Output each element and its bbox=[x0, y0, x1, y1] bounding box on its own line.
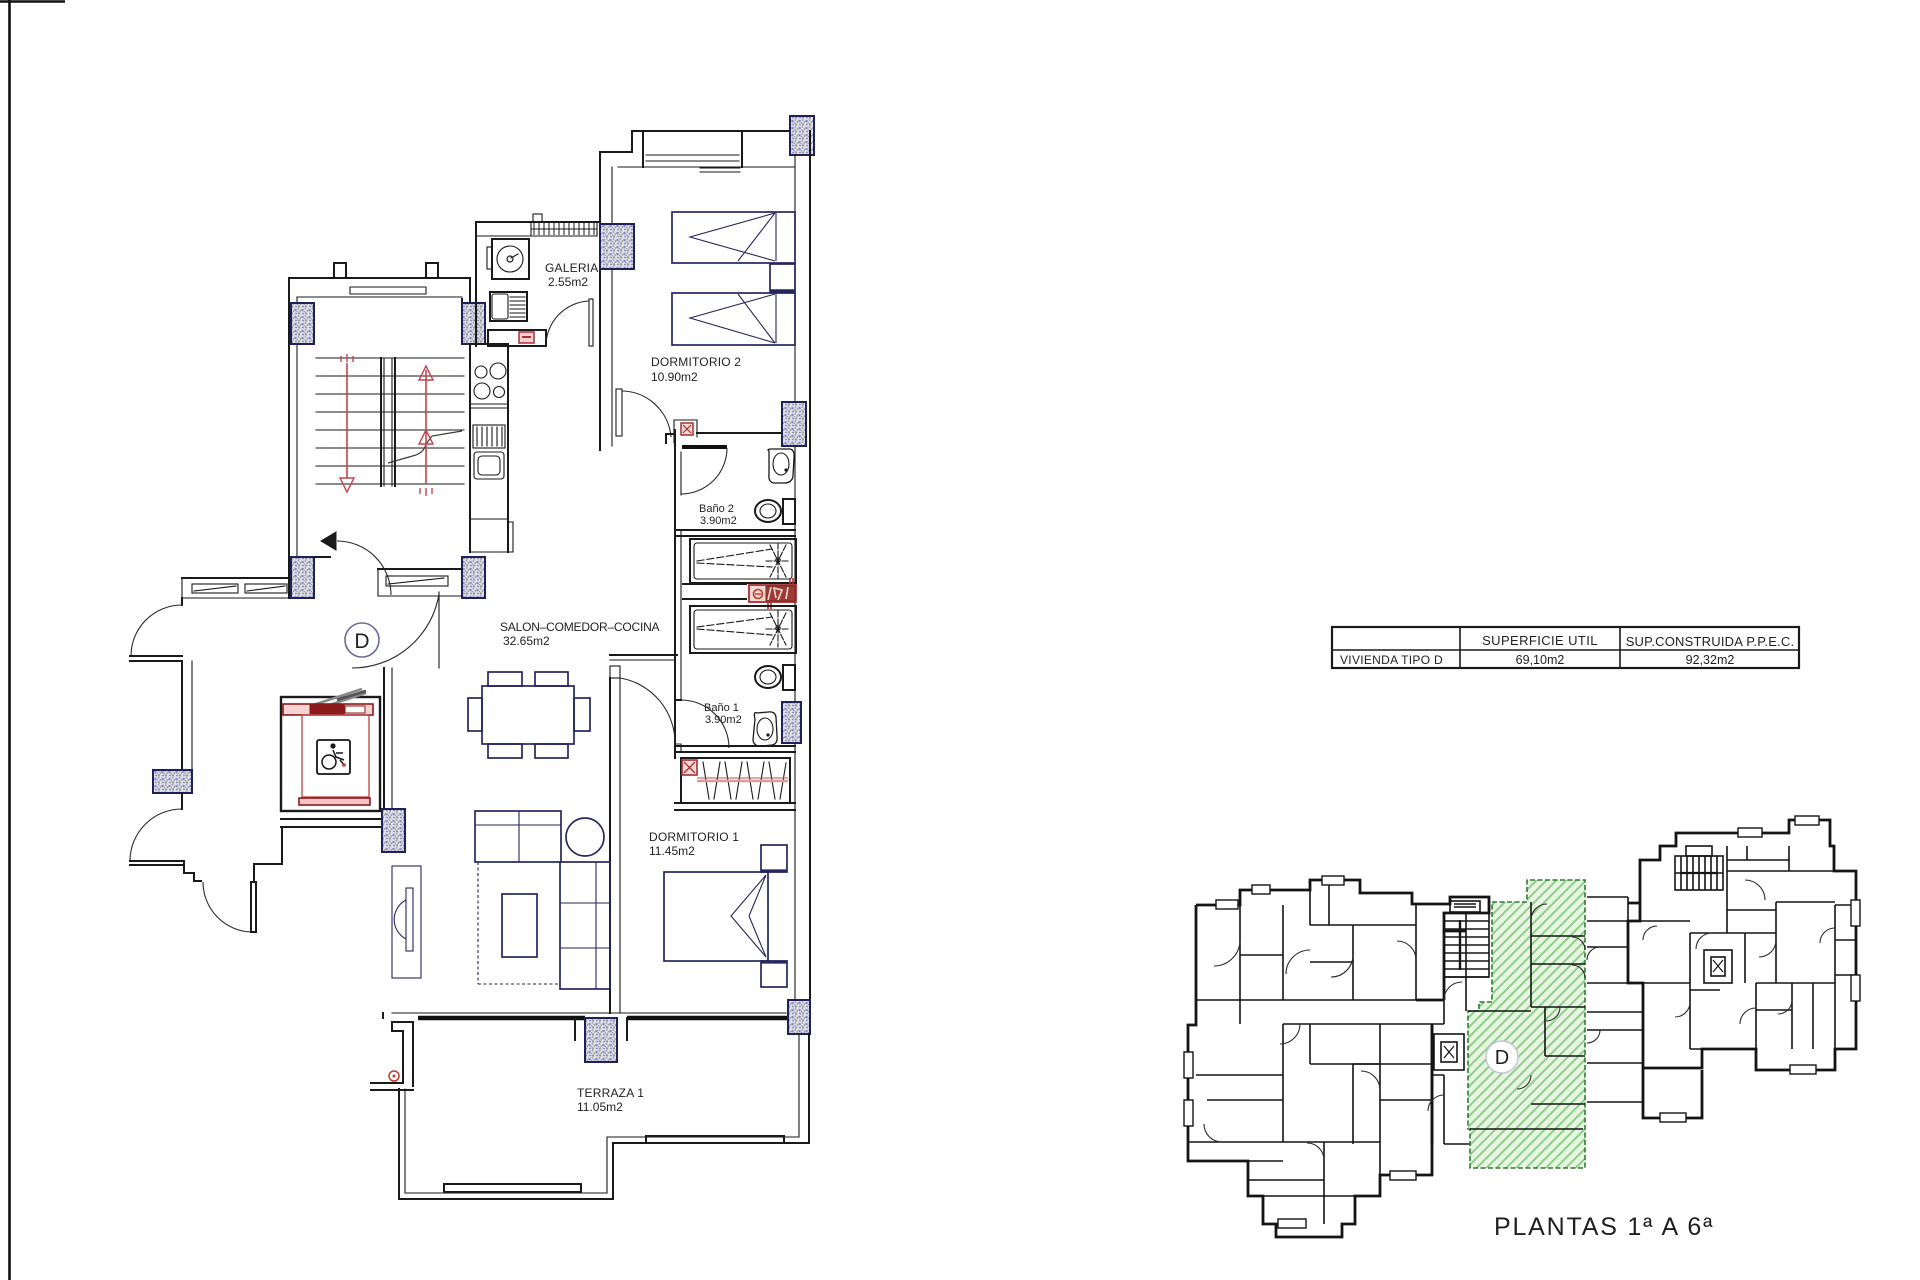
svg-text:Baño 2: Baño 2 bbox=[699, 503, 734, 515]
svg-text:Baño 1: Baño 1 bbox=[704, 702, 739, 714]
svg-text:2.55m2: 2.55m2 bbox=[548, 275, 588, 289]
svg-text:SUPERFICIE UTIL: SUPERFICIE UTIL bbox=[1482, 633, 1598, 648]
svg-text:DORMITORIO 2: DORMITORIO 2 bbox=[651, 355, 741, 369]
svg-text:11.05m2: 11.05m2 bbox=[577, 1100, 623, 1114]
svg-text:11.45m2: 11.45m2 bbox=[649, 844, 695, 858]
svg-text:TERRAZA 1: TERRAZA 1 bbox=[577, 1086, 644, 1100]
svg-text:DORMITORIO 1: DORMITORIO 1 bbox=[649, 830, 739, 844]
svg-text:SALON–COMEDOR–COCINA: SALON–COMEDOR–COCINA bbox=[500, 620, 660, 634]
svg-text:69,10m2: 69,10m2 bbox=[1516, 653, 1565, 667]
svg-text:32.65m2: 32.65m2 bbox=[503, 634, 550, 648]
svg-text:D: D bbox=[1495, 1047, 1509, 1069]
svg-text:92,32m2: 92,32m2 bbox=[1686, 653, 1735, 667]
svg-text:PLANTAS 1ª A 6ª: PLANTAS 1ª A 6ª bbox=[1494, 1213, 1714, 1241]
svg-text:3.90m2: 3.90m2 bbox=[700, 515, 737, 527]
svg-text:GALERIA: GALERIA bbox=[545, 261, 598, 275]
svg-text:SUP.CONSTRUIDA P.P.E.C.: SUP.CONSTRUIDA P.P.E.C. bbox=[1626, 634, 1795, 649]
svg-text:D: D bbox=[354, 630, 369, 653]
svg-text:VIVIENDA TIPO D: VIVIENDA TIPO D bbox=[1340, 653, 1443, 667]
svg-text:10.90m2: 10.90m2 bbox=[651, 370, 698, 384]
